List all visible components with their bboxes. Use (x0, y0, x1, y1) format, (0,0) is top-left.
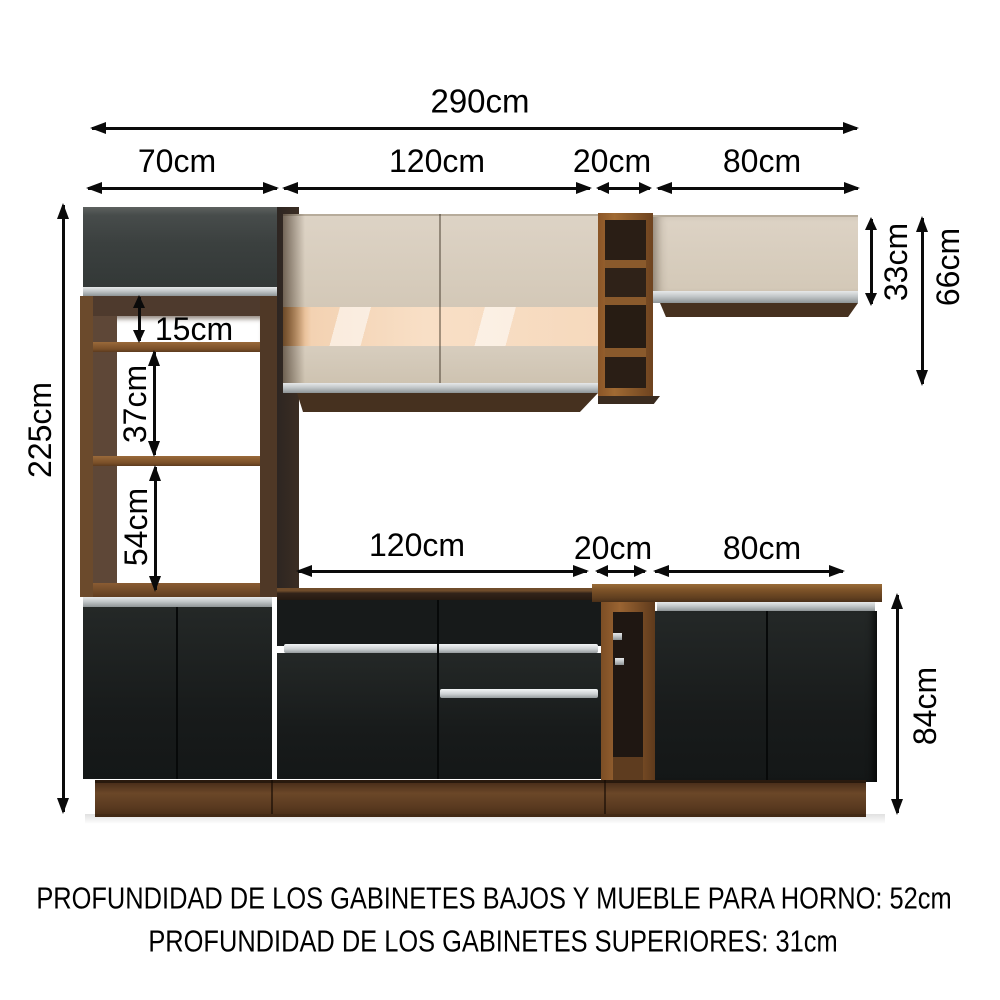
tall-cabinet-base-trim (83, 597, 272, 607)
arrow-base-84 (896, 595, 899, 813)
kitchen-dimension-diagram: 290cm 70cm 120cm 20cm 80cm 225cm 15cm 37… (0, 0, 1000, 1000)
base-120-upper-panel (277, 600, 601, 646)
wall-cabinet-120-underside (297, 393, 598, 412)
arrow-top-80 (658, 187, 858, 190)
wall-cabinet-120-trim (283, 383, 598, 393)
drawer-handle (440, 689, 598, 698)
door-seam (437, 600, 439, 779)
toe-kick-seam (271, 780, 273, 814)
drawer-handle (284, 644, 598, 653)
wall-shelf-20-compartment (605, 268, 646, 297)
arrow-upper-33 (870, 219, 873, 304)
floor-shadow (85, 814, 885, 824)
tall-cabinet-top-trim (83, 287, 277, 296)
toe-kick (95, 780, 866, 817)
label-top-80: 80cm (723, 145, 801, 177)
tall-cabinet-bottom-plank (93, 583, 260, 597)
door-seam (766, 611, 768, 782)
base-120-doors (277, 653, 601, 779)
wall-shelf-20-shadow (598, 396, 660, 404)
wood-shelf (605, 348, 646, 357)
label-total-width: 290cm (430, 85, 529, 118)
wood-shelf (605, 297, 646, 305)
label-upper-66: 66cm (932, 228, 964, 306)
wall-shelf-20-compartment (605, 305, 646, 348)
hinge (613, 633, 622, 640)
arrow-opening-54 (154, 467, 157, 590)
door-seam (439, 214, 441, 383)
wall-shelf-20-compartment (605, 220, 646, 260)
label-top-20: 20cm (573, 145, 651, 177)
arrow-total-width-290 (92, 127, 857, 130)
arrow-opening-37 (153, 352, 156, 455)
door-seam (176, 607, 178, 779)
wall-cabinet-80-underside (660, 303, 858, 317)
arrow-top-20 (598, 187, 650, 190)
arrow-opening-15 (138, 297, 141, 341)
toe-kick-seam (604, 780, 606, 814)
arrow-mid-20 (597, 570, 645, 573)
label-opening-54: 54cm (120, 488, 152, 566)
base-80-trim (657, 602, 875, 611)
label-top-120: 120cm (389, 145, 485, 177)
label-mid-20: 20cm (574, 532, 652, 564)
label-mid-120: 120cm (369, 529, 465, 561)
base-niche-bottom-rail (613, 757, 643, 782)
hinge (615, 658, 624, 665)
label-opening-15: 15cm (155, 313, 233, 345)
tall-cabinet-right-frame (260, 296, 277, 597)
arrow-mid-80 (655, 570, 843, 573)
depth-note-upper-cabinets: PROFUNDIDAD DE LOS GABINETES SUPERIORES:… (148, 926, 837, 957)
wall-cabinet-80-trim (653, 291, 858, 303)
base-right-countertop (592, 584, 882, 602)
wood-shelf (93, 456, 260, 466)
label-top-70: 70cm (138, 145, 216, 177)
wall-cabinet-120-left-shadow (283, 214, 305, 383)
label-upper-33: 33cm (880, 223, 912, 301)
wall-shelf-20-compartment (605, 357, 646, 388)
wood-shelf (605, 260, 646, 268)
arrow-top-120 (284, 187, 590, 190)
arrow-top-70 (88, 187, 277, 190)
label-base-84: 84cm (909, 667, 941, 745)
depth-note-base-cabinets: PROFUNDIDAD DE LOS GABINETES BAJOS Y MUE… (36, 883, 951, 914)
wall-cabinet-80-door (653, 215, 858, 293)
label-mid-80: 80cm (723, 532, 801, 564)
label-height-225: 225cm (24, 382, 56, 478)
tall-cabinet-top-door (83, 207, 277, 288)
arrow-mid-120 (298, 570, 587, 573)
arrow-upper-66 (921, 218, 924, 384)
arrow-height-225 (62, 205, 65, 812)
label-opening-37: 37cm (119, 365, 151, 443)
